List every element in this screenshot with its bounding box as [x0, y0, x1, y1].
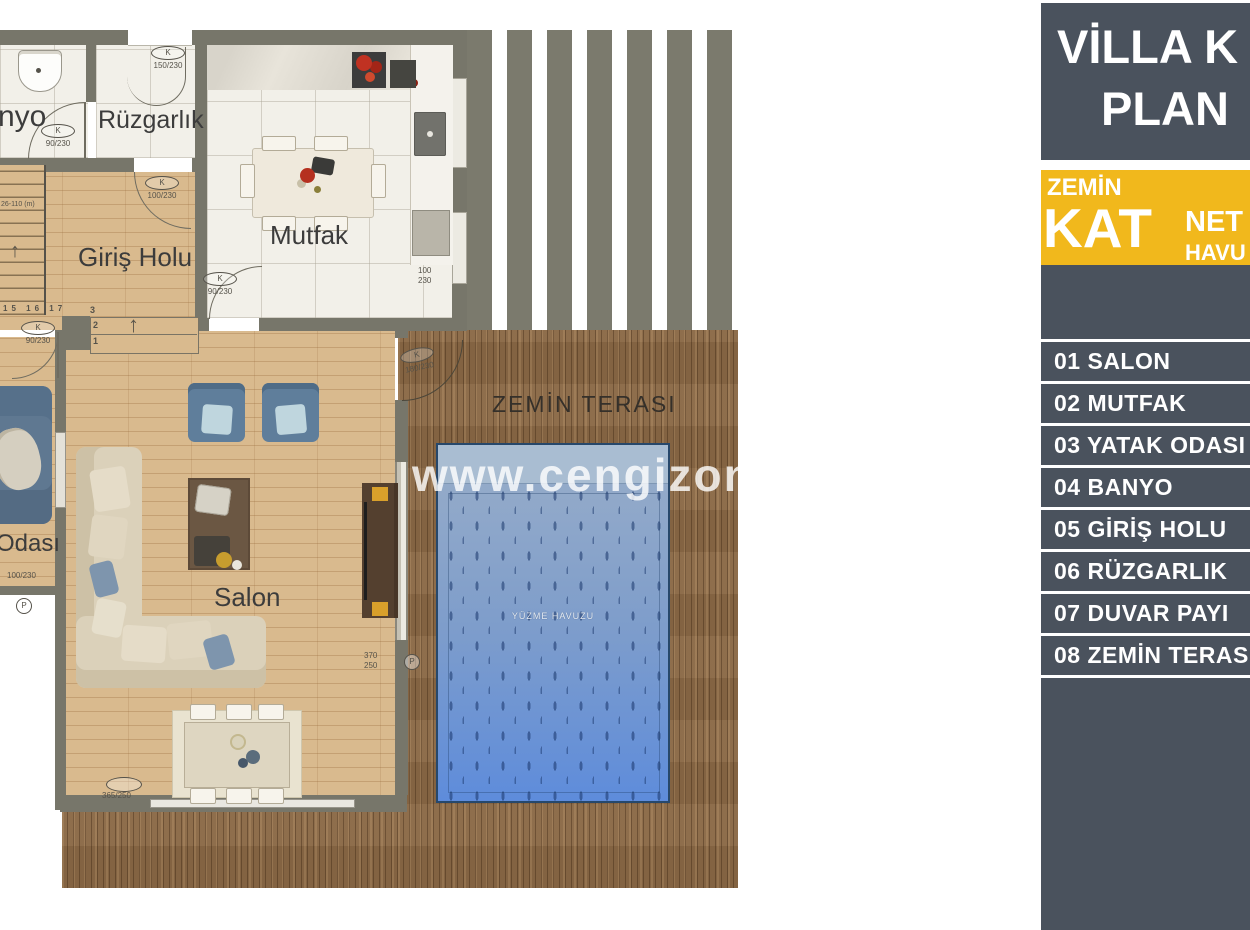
tv-unit-accent	[372, 487, 388, 501]
sink-drain	[36, 68, 41, 73]
door-tag-size: 90/230	[26, 336, 50, 345]
legend-row-zemin-terasi: 08 ZEMİN TERASI	[1041, 636, 1250, 675]
screenshot-root: { "sidebar": { "title_line1": "VİLLA K",…	[0, 0, 1250, 930]
kitchen-appliance	[412, 210, 450, 256]
sofa-cushion	[89, 465, 131, 512]
watermark: www.cengizonay.c	[412, 448, 740, 502]
coffee-stool-yellow	[216, 552, 232, 568]
door-tag-size: 90/230	[208, 287, 232, 296]
kitchen-chair	[314, 136, 348, 151]
entry-steps	[90, 317, 199, 354]
stair-note: 26-110 (m)	[1, 200, 35, 209]
sidebar-footer-block	[1041, 678, 1250, 930]
salon-bottom-window	[150, 799, 355, 808]
sidebar-header: VİLLA K PLAN	[1041, 3, 1250, 160]
label-terrace: ZEMİN TERASI	[492, 391, 677, 418]
dim-bedroom-window: 100/230	[7, 571, 36, 580]
sofa-cushion	[88, 514, 129, 560]
door-opening-giris	[134, 158, 192, 172]
door-opening-ruzgarlik	[128, 30, 192, 46]
door-tag-giris-top: K 100/230	[142, 176, 182, 200]
dining-decor-flower	[230, 734, 246, 750]
stair-up-arrow-icon: ↑	[10, 240, 20, 263]
kitchen-window	[452, 78, 467, 168]
legend-row-ruzgarlik: 06 RÜZGARLIK	[1041, 552, 1250, 591]
wall-top	[0, 30, 458, 45]
legend-row-yatak-odasi: 03 YATAK ODASI	[1041, 426, 1250, 465]
p-symbol: P	[16, 598, 32, 614]
wall-bedroom-right	[55, 330, 66, 810]
tv-unit	[362, 483, 398, 618]
floor-plan: ↑ 26-110 (m) 15 16 17 3 2 1 ↑ K 150/230 …	[0, 0, 740, 930]
wall-kitchen-right	[452, 30, 467, 331]
stair-numbers: 15 16 17	[3, 304, 66, 313]
dining-chair	[190, 788, 216, 804]
staircase	[0, 165, 46, 315]
label-yatak-odasi: Odası	[0, 530, 60, 558]
sidebar-spacer	[1041, 265, 1250, 339]
coffee-decor	[232, 560, 242, 570]
door-tag-size: 100/230	[148, 191, 177, 200]
legend-row-banyo: 04 BANYO	[1041, 468, 1250, 507]
door-tag-size: 90/230	[46, 139, 70, 148]
steps-up-arrow-icon: ↑	[128, 312, 139, 338]
p-symbol: P	[404, 654, 420, 670]
door-tag-giris-bottom: K 90/230	[18, 321, 58, 345]
door-opening-mutfak	[209, 318, 259, 331]
kitchen-plant-red	[356, 55, 372, 71]
sidebar-title-line2: PLAN	[1101, 81, 1229, 136]
wall-bedroom-bottom	[0, 586, 55, 595]
kitchen-plant-base-2	[390, 60, 416, 88]
bottom-deck	[62, 812, 398, 888]
pergola-louvers	[467, 30, 737, 330]
tv-unit-accent	[372, 602, 388, 616]
kitchen-window-2	[452, 212, 467, 284]
dining-chair	[226, 788, 252, 804]
label-salon: Salon	[214, 582, 281, 613]
door-tag-letter: K	[145, 176, 179, 190]
table-decor-flowers	[300, 168, 315, 183]
banner-net-label: NET	[1185, 206, 1243, 239]
dining-decor-cup	[238, 758, 248, 768]
door-tag-letter: K	[151, 46, 185, 60]
label-giris-holu: Giriş Holu	[78, 242, 192, 273]
dim-salon-right-w: 370	[364, 651, 377, 660]
dining-decor-cup	[246, 750, 260, 764]
pool-inner-line	[448, 493, 660, 793]
wall-banyo-divider	[86, 45, 96, 102]
stove-knob	[427, 131, 433, 137]
label-mutfak: Mutfak	[270, 220, 348, 251]
info-sidebar: VİLLA K PLAN ZEMİN KAT NET HAVU 01 SALON…	[1041, 0, 1250, 930]
dining-chair	[258, 788, 284, 804]
kitchen-chair	[262, 136, 296, 151]
entry-step-line	[90, 334, 197, 335]
dim-mutfak-w: 100	[418, 266, 431, 275]
door-tag-letter: K	[21, 321, 55, 335]
legend-row-salon: 01 SALON	[1041, 342, 1250, 381]
dim-mutfak-h: 230	[418, 276, 431, 285]
step-number-1: 1	[93, 337, 98, 346]
banner-floor-big: KAT	[1043, 196, 1152, 260]
dining-chair	[226, 704, 252, 720]
wall-salon-right-b	[395, 400, 408, 462]
kitchen-chair	[371, 164, 386, 198]
door-leaf-banyo	[84, 102, 86, 158]
door-tag-mutfak: K 90/230	[200, 272, 240, 296]
door-tag-ruzgarlik: K 150/230	[148, 46, 188, 70]
step-number-2: 2	[93, 321, 98, 330]
dining-table	[184, 722, 290, 788]
step-number-3: 3	[90, 306, 95, 315]
salon-left-window	[55, 432, 66, 508]
wall-block-giris-salon	[62, 316, 90, 350]
dining-chair	[258, 704, 284, 720]
armchair-cushion	[275, 404, 307, 436]
coffee-chair	[194, 484, 232, 516]
dim-salon-window: 365/250	[102, 791, 131, 800]
floor-banner: ZEMİN KAT NET HAVU	[1041, 170, 1250, 265]
legend-row-giris-holu: 05 GİRİŞ HOLU	[1041, 510, 1250, 549]
wall-salon-right-a	[395, 330, 408, 338]
label-banyo: nyo	[0, 100, 46, 134]
banner-havuz-label: HAVU	[1185, 240, 1246, 265]
dining-chair	[190, 704, 216, 720]
label-ruzgarlik: Rüzgarlık	[98, 106, 204, 135]
sofa-cushion	[121, 625, 167, 664]
legend-row-duvar-payi: 07 DUVAR PAYI	[1041, 594, 1250, 633]
tv-screen	[364, 502, 367, 600]
sidebar-title-line1: VİLLA K	[1057, 19, 1238, 74]
legend-row-mutfak: 02 MUTFAK	[1041, 384, 1250, 423]
dim-salon-right-h: 250	[364, 661, 377, 670]
pool-label: YÜZME HAVUZU	[438, 611, 668, 621]
door-tag-letter: K	[203, 272, 237, 286]
kitchen-chair	[240, 164, 255, 198]
door-tag-size: 150/230	[154, 61, 183, 70]
salon-window-ellipse	[106, 777, 142, 792]
armchair-cushion	[201, 404, 233, 435]
